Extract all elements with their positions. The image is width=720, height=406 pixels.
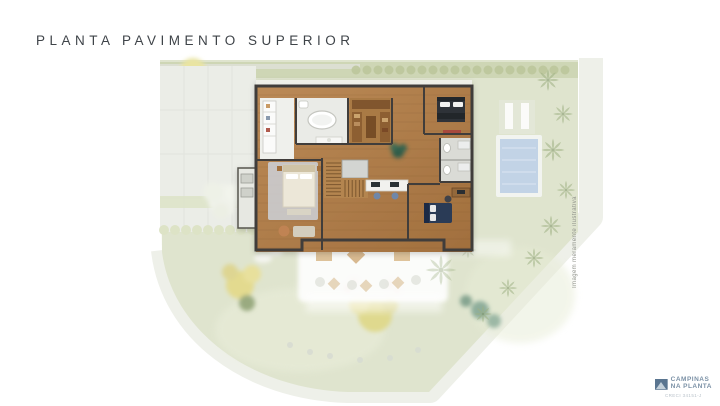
- rug: [443, 130, 461, 134]
- bathroom-tub: [296, 98, 348, 144]
- armchair: [279, 226, 290, 237]
- ac-unit: [241, 188, 253, 197]
- sun-lounger: [521, 103, 529, 129]
- swimming-pool: [500, 139, 538, 193]
- toilet: [299, 101, 308, 108]
- walk-in-closet: [350, 98, 392, 144]
- floor-plan: [238, 80, 472, 252]
- sun-lounger: [505, 103, 513, 129]
- chair: [374, 193, 381, 200]
- monitor: [371, 182, 380, 187]
- logo-flag-icon: [655, 379, 668, 390]
- monitor: [457, 190, 465, 194]
- chair: [445, 196, 452, 203]
- brand-logo: CAMPINAS NA PLANTA CRECI 34151-J: [655, 377, 712, 398]
- nightstand: [277, 166, 282, 171]
- logo-registration: CRECI 34151-J: [655, 393, 712, 398]
- toilet: [444, 166, 451, 175]
- chair: [392, 193, 399, 200]
- monitor: [390, 182, 399, 187]
- disclaimer-caption: Imagem meramente ilustrativa: [572, 192, 578, 288]
- bathrooms-right: [440, 138, 472, 182]
- logo-line2: NA PLANTA: [671, 384, 712, 391]
- presentation-slide: PLANTA PAVIMENTO SUPERIOR: [0, 0, 720, 406]
- utility-room: [260, 98, 294, 160]
- site-plan-illustration: [0, 0, 720, 406]
- sofa: [293, 226, 315, 237]
- ac-unit: [241, 174, 253, 183]
- staircase: [324, 160, 368, 198]
- toilet: [444, 144, 451, 153]
- service-balcony: [238, 168, 256, 228]
